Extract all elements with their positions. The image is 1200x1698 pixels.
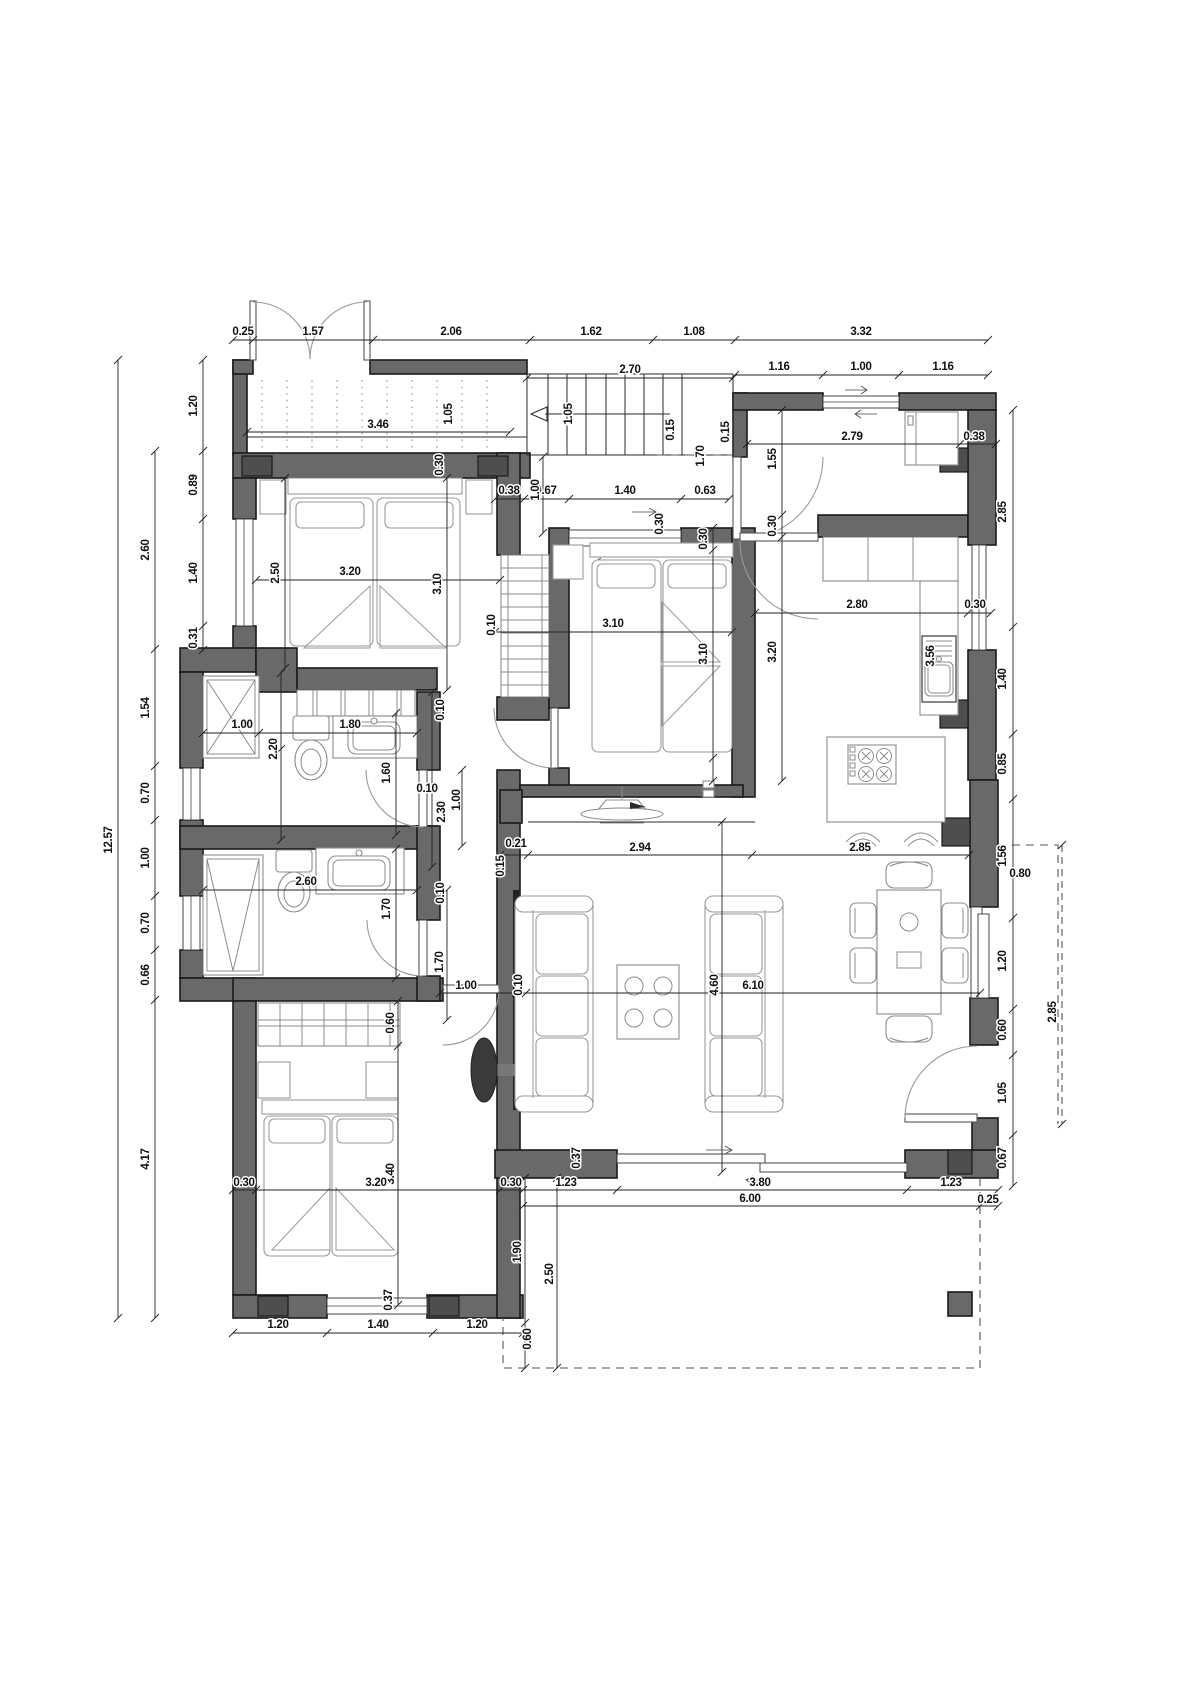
dimension-label: 1.23 <box>555 1177 576 1189</box>
dimension-label: 0.70 <box>140 912 152 933</box>
dimension-label: 3.10 <box>432 573 444 594</box>
dimension-label: 1.00 <box>140 847 152 868</box>
dimension-label: 3.80 <box>749 1177 770 1189</box>
bathroom1-shower <box>203 676 259 758</box>
dimension-label: 2.50 <box>270 562 282 583</box>
dimension-label: 0.31 <box>188 627 200 649</box>
dimension-label: 1.56 <box>997 845 1009 866</box>
hall-closet <box>501 555 549 697</box>
dimension-label: 1.40 <box>188 562 200 583</box>
dimension-label: 0.37 <box>571 1147 583 1168</box>
bathroom1-door <box>366 770 427 827</box>
dimension-label: 3.20 <box>767 641 779 662</box>
dimension-label: 0.25 <box>232 326 254 338</box>
sofa-left <box>515 896 593 1112</box>
dimension-label: 1.55 <box>767 448 779 470</box>
dimension-label: 0.15 <box>495 855 507 877</box>
bedroom1-window <box>236 519 253 626</box>
dimension-label: 1.57 <box>302 326 323 338</box>
dimension-label: 2.60 <box>295 876 316 888</box>
dimension-label: 0.60 <box>385 1012 397 1033</box>
dimension-label: 0.38 <box>963 431 985 443</box>
dimension-label: 0.30 <box>767 515 779 536</box>
dimension-label: 2.85 <box>1047 1001 1059 1023</box>
dimension-label: 1.40 <box>614 485 635 497</box>
dimension-label: 1.00 <box>530 479 542 500</box>
dimension-label: 1.08 <box>683 326 705 338</box>
dimension-label: 0.21 <box>505 838 527 850</box>
dimension-label: 0.25 <box>977 1194 999 1206</box>
dimension-label: 0.66 <box>140 964 152 985</box>
dimension-label: 0.60 <box>522 1328 534 1349</box>
dimension-label: 0.10 <box>435 699 447 720</box>
dimension-label: 0.30 <box>500 1177 521 1189</box>
dimension-label: 1.54 <box>140 697 152 719</box>
dimension-label: 0.67 <box>997 1147 1009 1168</box>
dimension-label: 1.20 <box>466 1319 487 1331</box>
dimension-label: 0.63 <box>694 485 715 497</box>
dimension-label: 1.70 <box>381 898 393 919</box>
dimension-label: 0.30 <box>434 454 446 475</box>
dimension-label: 0.10 <box>486 614 498 635</box>
dimension-label: 2.85 <box>849 842 871 854</box>
dimension-label: 1.16 <box>768 361 789 373</box>
dimension-label: 0.10 <box>513 974 525 995</box>
dimension-label: 6.10 <box>742 980 763 992</box>
bathroom2-sink <box>316 848 404 894</box>
floor-plan-page: 0.251.572.061.621.083.322.701.161.001.16… <box>0 0 1200 1698</box>
dimension-label: 1.70 <box>434 951 446 972</box>
bathroom2-window <box>183 896 200 950</box>
dimension-label: 3.46 <box>367 419 388 431</box>
dimension-label: 1.05 <box>563 403 575 425</box>
dimension-label: 0.15 <box>665 419 677 441</box>
entry-cabinet <box>905 412 958 465</box>
dimension-label: 1.00 <box>231 719 252 731</box>
bedroom3-window <box>327 1298 427 1314</box>
dimension-label: 1.70 <box>695 445 707 466</box>
dimension-label: 2.94 <box>629 842 651 854</box>
dimension-label: 1.20 <box>267 1319 288 1331</box>
dimension-label: 2.80 <box>846 599 867 611</box>
bedroom3-bed <box>258 1062 398 1256</box>
dimension-label: 0.15 <box>720 421 732 443</box>
dimension-label: 3.20 <box>365 1177 386 1189</box>
terrace-door <box>905 1046 977 1122</box>
dimension-label: 1.80 <box>339 719 360 731</box>
kitchen-east-window <box>972 545 986 650</box>
dimension-label: 2.79 <box>841 431 862 443</box>
bathroom1-toilet <box>293 716 329 780</box>
dimension-label: 1.90 <box>512 1241 524 1262</box>
dimension-label: 0.10 <box>416 783 437 795</box>
bedroom3-door <box>443 985 499 1045</box>
coffee-table <box>617 965 679 1039</box>
dimension-label: 1.60 <box>381 762 393 783</box>
dimension-label: 1.05 <box>997 1082 1009 1104</box>
dimension-label: 0.80 <box>1009 868 1030 880</box>
dimension-label: 1.20 <box>997 950 1009 971</box>
dimension-label: 0.30 <box>233 1177 254 1189</box>
bathroom2-door <box>367 920 427 976</box>
dimension-label: 0.30 <box>698 528 710 549</box>
kitchen-stove <box>848 745 896 784</box>
dimension-label: 2.50 <box>544 1263 556 1284</box>
dimension-label: 0.85 <box>997 753 1009 775</box>
dimension-label: 2.70 <box>619 364 640 376</box>
dimension-label: 0.37 <box>383 1289 395 1310</box>
dimension-label: 1.00 <box>451 789 463 810</box>
dimension-label: 2.30 <box>436 801 448 822</box>
dimension-label: 0.30 <box>964 599 985 611</box>
sofa-right <box>705 896 783 1112</box>
dimension-label: 1.23 <box>940 1177 961 1189</box>
bathroom2-shower <box>203 855 263 975</box>
dimension-label: 1.05 <box>443 403 455 425</box>
dimension-label: 1.20 <box>188 395 200 416</box>
stair-direction-arrow <box>531 407 547 421</box>
dimension-label: 3.10 <box>698 643 710 664</box>
exterior-stairs <box>527 374 733 455</box>
dimension-label: 2.20 <box>268 738 280 759</box>
bathroom1-window <box>183 768 200 820</box>
terrace-column <box>948 1292 972 1316</box>
dimension-label: 0.38 <box>498 485 520 497</box>
bedroom1-bed <box>260 478 492 648</box>
dimension-label: 1.00 <box>455 980 476 992</box>
dimension-label: 3.32 <box>850 326 871 338</box>
dimension-label: 1.16 <box>932 361 953 373</box>
dimension-label: 3.56 <box>925 645 937 666</box>
dimension-label: 12.57 <box>103 826 115 853</box>
dimension-label: 4.17 <box>140 1148 152 1169</box>
dimension-label: 4.60 <box>709 974 721 995</box>
dimension-label: 1.40 <box>367 1319 388 1331</box>
floor-plan: 0.251.572.061.621.083.322.701.161.001.16… <box>0 0 1200 1698</box>
dimension-label: 0.60 <box>997 1019 1009 1040</box>
dimension-label: 2.85 <box>997 501 1009 523</box>
dimension-label: 0.70 <box>140 782 152 803</box>
balcony-floor-hatch <box>247 380 527 450</box>
kitchen-north-window <box>823 386 899 418</box>
dimension-label: 0.30 <box>654 513 666 534</box>
dimension-label: 0.89 <box>188 474 200 495</box>
dimension-label: 0.10 <box>435 882 447 903</box>
dining-table <box>850 862 968 1042</box>
dimension-label: 1.62 <box>580 326 601 338</box>
dining-sliding-window <box>971 907 989 998</box>
bedroom3-wardrobe <box>258 1003 400 1046</box>
dimension-label: 1.40 <box>997 668 1009 689</box>
dimension-label: 6.00 <box>739 1193 760 1205</box>
dimension-label: 3.10 <box>602 618 623 630</box>
dimension-label: 2.60 <box>140 539 152 560</box>
dimension-label: 2.06 <box>440 326 461 338</box>
dimension-label: 3.20 <box>339 566 360 578</box>
dimension-label: 3.40 <box>385 1163 397 1184</box>
dimension-label: 1.00 <box>850 361 871 373</box>
